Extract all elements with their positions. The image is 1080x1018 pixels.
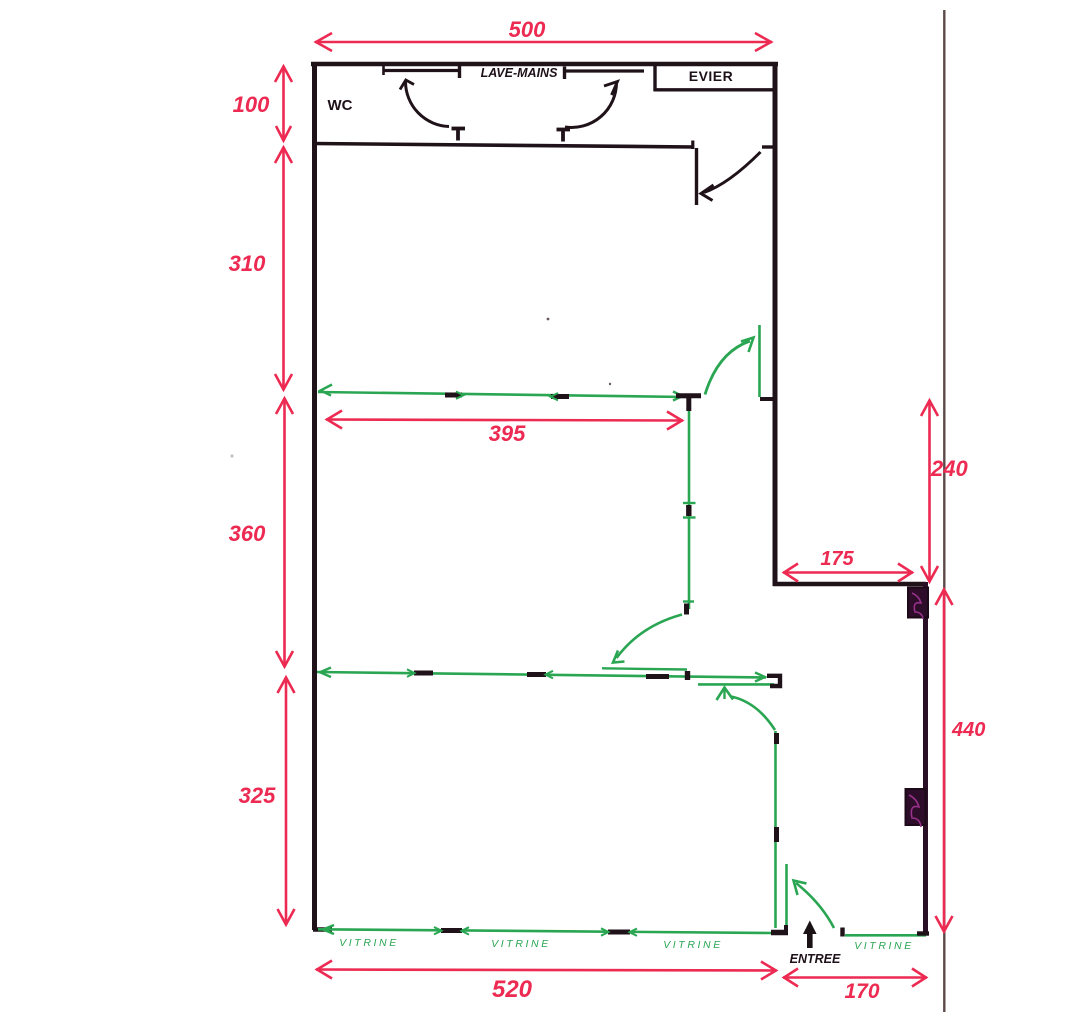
svg-text:175: 175 (820, 548, 854, 570)
svg-text:VITRINE: VITRINE (339, 937, 399, 949)
svg-text:170: 170 (844, 980, 879, 1003)
svg-text:440: 440 (951, 719, 985, 741)
svg-text:500: 500 (509, 17, 546, 42)
svg-text:310: 310 (229, 251, 266, 276)
svg-text:WC: WC (328, 97, 353, 114)
svg-text:EVIER: EVIER (689, 68, 734, 84)
svg-text:240: 240 (930, 456, 968, 481)
svg-text:100: 100 (233, 92, 270, 117)
svg-text:VITRINE: VITRINE (491, 938, 551, 950)
svg-text:325: 325 (239, 783, 276, 808)
svg-text:395: 395 (489, 421, 526, 446)
svg-text:VITRINE: VITRINE (854, 940, 914, 952)
svg-text:360: 360 (229, 521, 266, 546)
svg-text:VITRINE: VITRINE (663, 939, 723, 951)
svg-text:LAVE-MAINS: LAVE-MAINS (481, 66, 559, 80)
svg-text:520: 520 (492, 976, 533, 1003)
svg-text:ENTREE: ENTREE (790, 952, 841, 966)
